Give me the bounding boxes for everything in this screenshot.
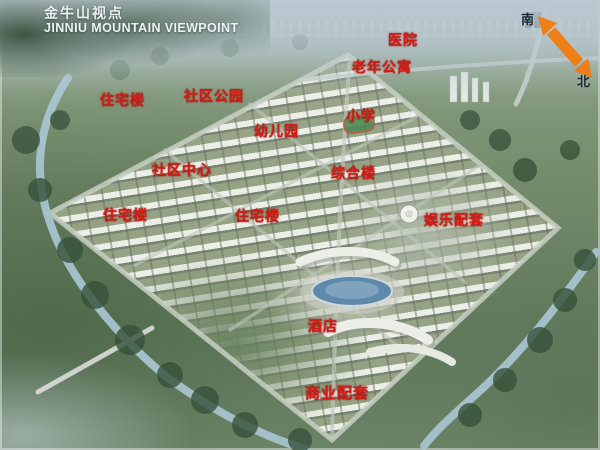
highrise-towers xyxy=(450,72,489,102)
label-hotel: 酒店 xyxy=(308,316,338,336)
dome-building xyxy=(400,205,418,223)
label-residential-1: 住宅楼 xyxy=(100,90,145,110)
label-residential-2: 住宅楼 xyxy=(103,205,148,225)
label-entertainment-facilities: 娱乐配套 xyxy=(424,210,484,230)
label-community-center: 社区中心 xyxy=(152,160,212,180)
title-english: JINNIU MOUNTAIN VIEWPOINT xyxy=(44,21,239,35)
title-chinese: 金牛山视点 xyxy=(44,5,239,21)
label-kindergarten: 幼儿园 xyxy=(254,121,299,141)
label-primary-school: 小学 xyxy=(346,106,376,126)
label-mixed-use-building: 综合楼 xyxy=(331,163,376,183)
label-hospital: 医院 xyxy=(388,30,418,50)
scene-illustration xyxy=(0,0,600,450)
label-community-park: 社区公园 xyxy=(184,86,244,106)
label-residential-3: 住宅楼 xyxy=(235,206,280,226)
label-commercial-facilities: 商业配套 xyxy=(305,382,369,403)
tree-cluster-far xyxy=(110,34,308,80)
pond xyxy=(300,270,404,314)
aerial-masterplan-rendering: 金牛山视点 JINNIU MOUNTAIN VIEWPOINT 医院 老年公寓 … xyxy=(0,0,600,450)
label-senior-apartments: 老年公寓 xyxy=(352,57,412,77)
compass-north-label: 北 xyxy=(577,71,590,90)
compass-south-label: 南 xyxy=(521,9,534,28)
title-block: 金牛山视点 JINNIU MOUNTAIN VIEWPOINT xyxy=(44,5,239,35)
